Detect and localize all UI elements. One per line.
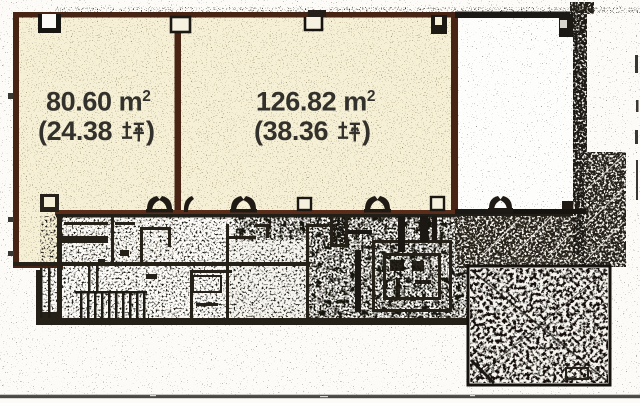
svg-text:): ) — [362, 116, 371, 146]
svg-text:(38.36: (38.36 — [254, 116, 329, 146]
svg-text:): ) — [146, 116, 155, 146]
svg-text:(24.38: (24.38 — [38, 116, 113, 146]
svg-text:80.60 m2: 80.60 m2 — [46, 87, 151, 117]
svg-text:126.82 m2: 126.82 m2 — [256, 87, 375, 117]
